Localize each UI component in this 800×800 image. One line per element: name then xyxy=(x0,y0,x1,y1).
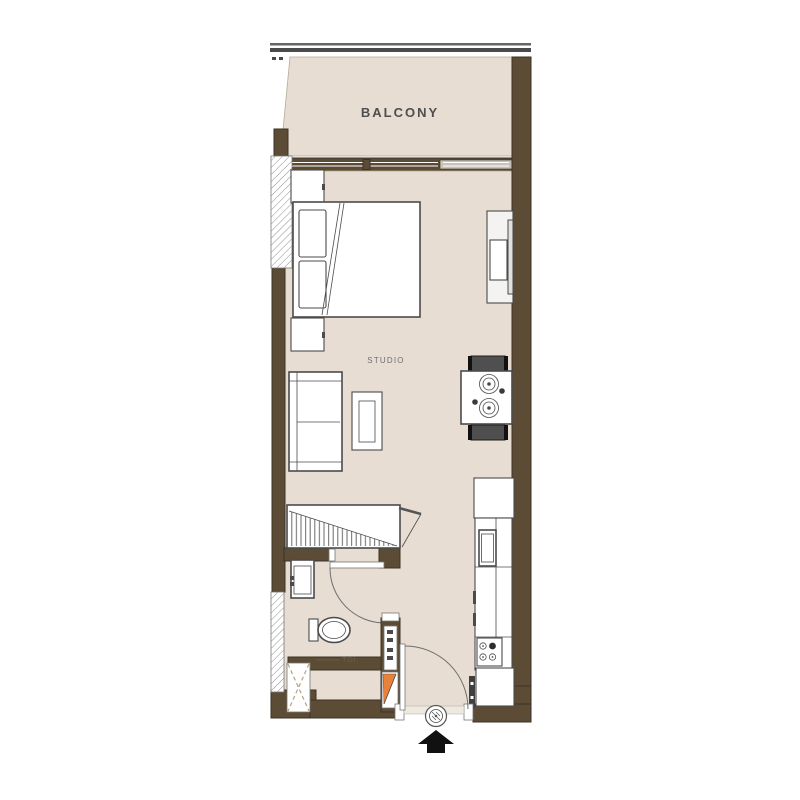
door-strike-panel xyxy=(469,676,475,708)
bottom-wall-right xyxy=(473,704,531,722)
tv-console-shelf xyxy=(490,240,507,280)
entry-floor-marker xyxy=(426,706,447,727)
tv-console xyxy=(487,211,513,303)
bathroom-door-leaf xyxy=(330,562,384,568)
kitchen-sink xyxy=(479,530,496,566)
sliding-door xyxy=(440,160,512,169)
tv-screen xyxy=(508,220,513,294)
dining-set xyxy=(461,356,512,440)
right-wall xyxy=(512,57,531,712)
stove xyxy=(477,638,502,666)
balcony-label: BALCONY xyxy=(361,105,439,120)
service-shaft xyxy=(287,663,310,712)
utility-partition xyxy=(381,613,400,712)
toilet-label: TOI. xyxy=(342,655,358,664)
counter-handle-2 xyxy=(473,613,476,626)
nightstand-top xyxy=(291,170,324,203)
floor-plan: BALCONY STUDIO xyxy=(0,0,800,800)
dining-chair-top xyxy=(468,356,508,371)
bathroom-sink xyxy=(290,560,314,598)
entry-door-leaf xyxy=(400,644,405,710)
balcony-area: BALCONY xyxy=(283,57,514,156)
nightstand-top-handle xyxy=(322,184,325,190)
balcony-left-wall xyxy=(274,129,288,156)
lower-cabinet xyxy=(476,668,514,706)
studio-label: STUDIO xyxy=(367,356,404,365)
floor-plan-canvas: BALCONY STUDIO xyxy=(0,0,800,800)
toilet xyxy=(309,618,350,643)
bathroom-top-wall xyxy=(284,548,332,561)
counter-handle-1 xyxy=(473,591,476,604)
kitchen xyxy=(469,478,514,708)
nightstand-bottom xyxy=(291,318,324,351)
nightstand-bottom-handle xyxy=(322,332,325,338)
fridge xyxy=(474,478,514,518)
pillow-1 xyxy=(299,210,326,257)
dining-chair-bottom xyxy=(468,425,508,440)
pillow-2 xyxy=(299,261,326,308)
left-wall xyxy=(272,268,285,592)
